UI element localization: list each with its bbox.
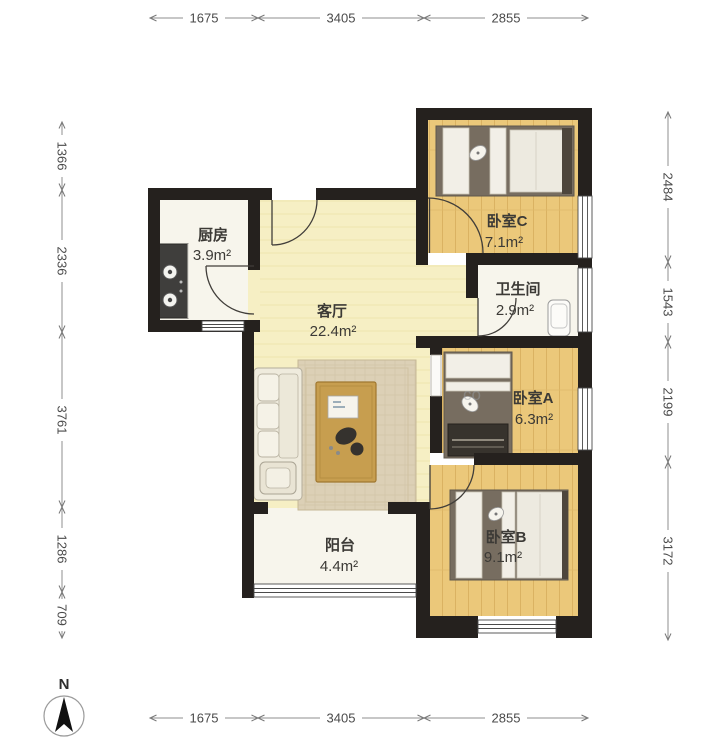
dim-left-5: 709 xyxy=(55,604,70,626)
watermark-text: co xyxy=(463,385,481,404)
bathroom-area: 2.9m² xyxy=(496,302,534,319)
bed-icon-bedroom-a xyxy=(444,352,512,458)
dimension-left: 1366 2336 3761 1286 709 xyxy=(55,122,70,638)
kitchen-name: 厨房 xyxy=(198,226,228,244)
bedroom-c-name: 卧室C xyxy=(487,212,528,230)
washbasin-icon xyxy=(548,300,570,336)
stove-icon xyxy=(158,244,188,318)
north-compass-icon: N xyxy=(44,676,84,736)
living-area: 22.4m² xyxy=(310,323,357,340)
dim-left-4: 1286 xyxy=(55,535,70,564)
dimension-right: 2484 1543 2199 3172 xyxy=(661,112,676,640)
bedroom-b-name: 卧室B xyxy=(486,528,527,546)
bedroom-a-name: 卧室A xyxy=(513,389,554,407)
balcony-area: 4.4m² xyxy=(320,558,358,575)
dim-bottom-3: 2855 xyxy=(492,711,521,726)
dim-right-2: 1543 xyxy=(661,288,676,317)
floor-plan-canvas: co 厨房 3.9m² 客厅 22.4m² 卧室C 7.1m² 卫生间 2.9m… xyxy=(0,0,706,756)
balcony-name: 阳台 xyxy=(325,536,355,554)
bedroom-a-door-leaf xyxy=(431,355,441,396)
dimension-bottom: 1675 3405 2855 xyxy=(150,711,588,726)
dim-left-2: 2336 xyxy=(55,247,70,276)
bathroom-name: 卫生间 xyxy=(495,280,540,298)
bedroom-c-area: 7.1m² xyxy=(485,234,523,251)
bedroom-b-area: 9.1m² xyxy=(484,549,522,566)
dim-bottom-1: 1675 xyxy=(190,711,219,726)
dim-right-1: 2484 xyxy=(661,173,676,202)
coffee-table-icon xyxy=(316,382,376,482)
kitchen-area: 3.9m² xyxy=(193,247,231,264)
dim-right-4: 3172 xyxy=(661,537,676,566)
sofa-icon xyxy=(254,368,302,500)
bedroom-a-area: 6.3m² xyxy=(515,411,553,428)
dim-right-3: 2199 xyxy=(661,388,676,417)
dim-top-1: 1675 xyxy=(190,11,219,26)
dimension-top: 1675 3405 2855 xyxy=(150,11,588,26)
window-bedroom-b xyxy=(478,620,556,633)
window-bedroom-c xyxy=(578,196,592,258)
dim-left-1: 1366 xyxy=(55,142,70,171)
dim-left-3: 3761 xyxy=(55,406,70,435)
window-bathroom xyxy=(578,268,592,332)
living-name: 客厅 xyxy=(316,302,347,320)
bed-icon-bedroom-c xyxy=(436,126,574,196)
dim-bottom-2: 3405 xyxy=(327,711,356,726)
window-kitchen xyxy=(202,321,244,331)
north-label: N xyxy=(59,676,70,693)
dim-top-2: 3405 xyxy=(327,11,356,26)
window-bedroom-a xyxy=(578,388,592,450)
window-balcony xyxy=(254,584,416,597)
floor-plan-page: co 厨房 3.9m² 客厅 22.4m² 卧室C 7.1m² 卫生间 2.9m… xyxy=(0,0,706,756)
dim-top-3: 2855 xyxy=(492,11,521,26)
